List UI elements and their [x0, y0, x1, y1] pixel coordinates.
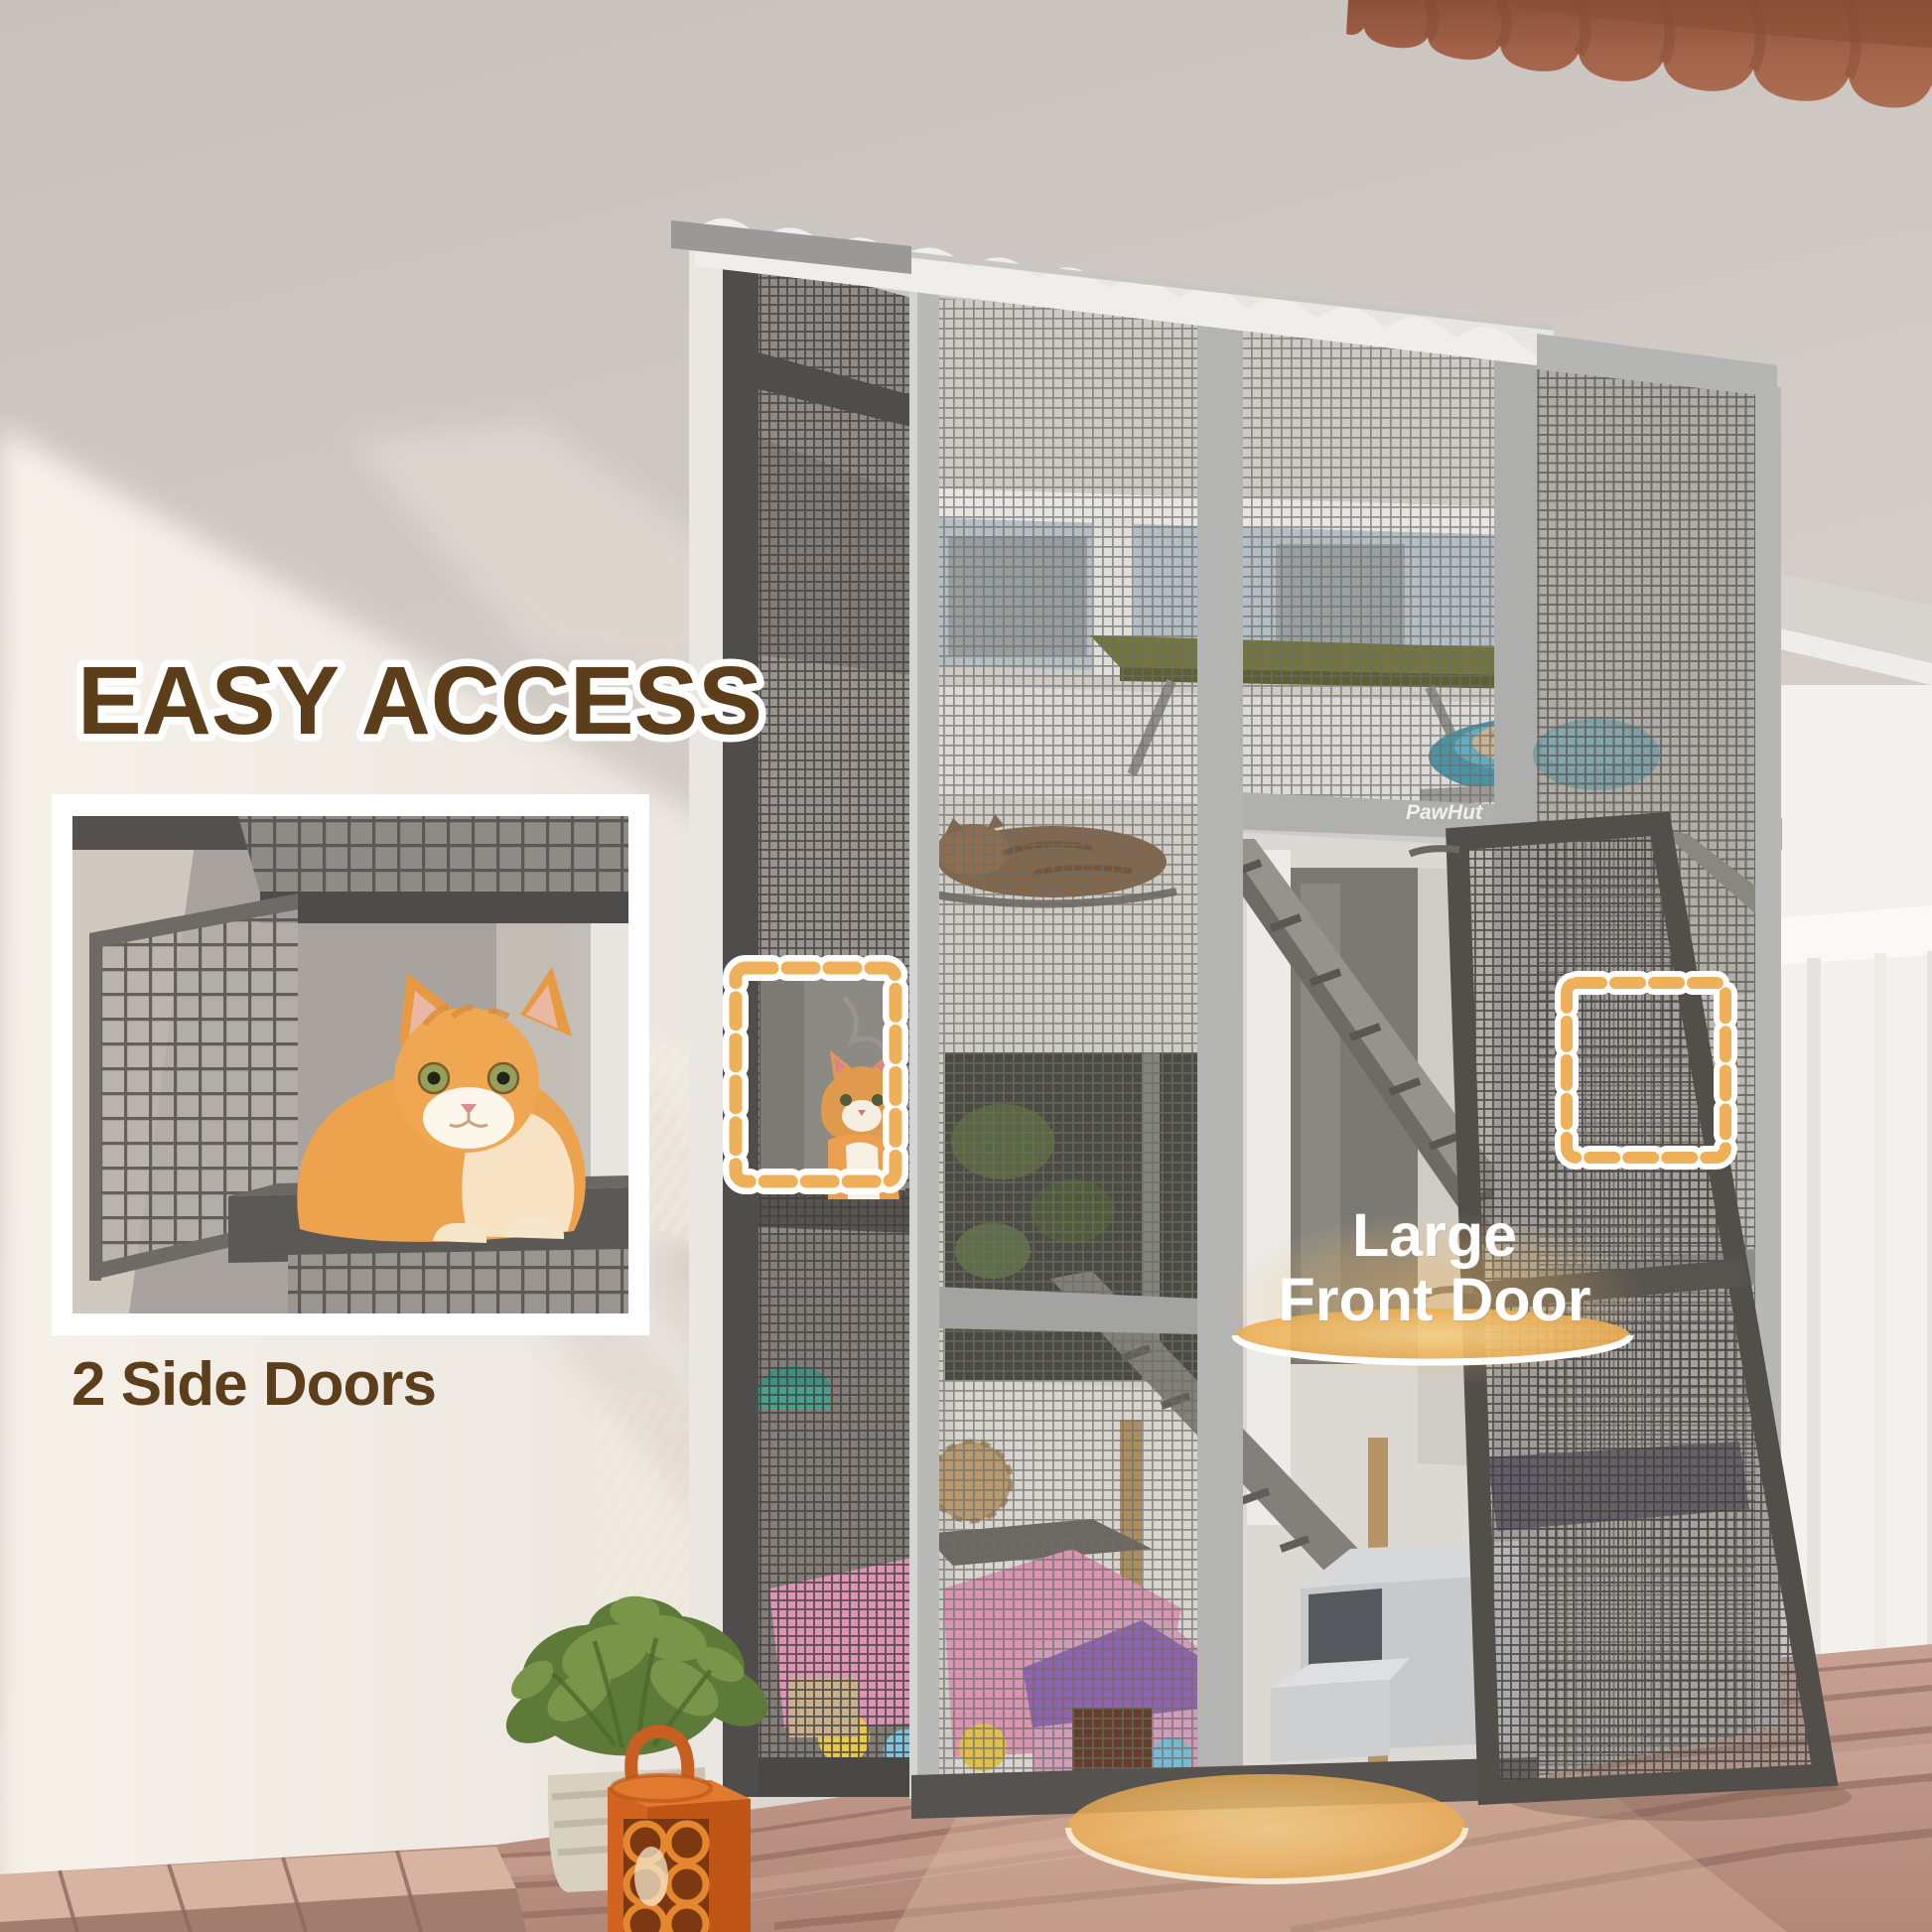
svg-text:Large: Large: [1352, 1201, 1517, 1269]
svg-text:Front Door: Front Door: [1278, 1266, 1590, 1333]
svg-text:2 Side Doors: 2 Side Doors: [71, 1350, 436, 1419]
svg-text:EASY ACCESS: EASY ACCESS: [77, 646, 762, 755]
svg-text:PawHut: PawHut: [1406, 801, 1483, 824]
